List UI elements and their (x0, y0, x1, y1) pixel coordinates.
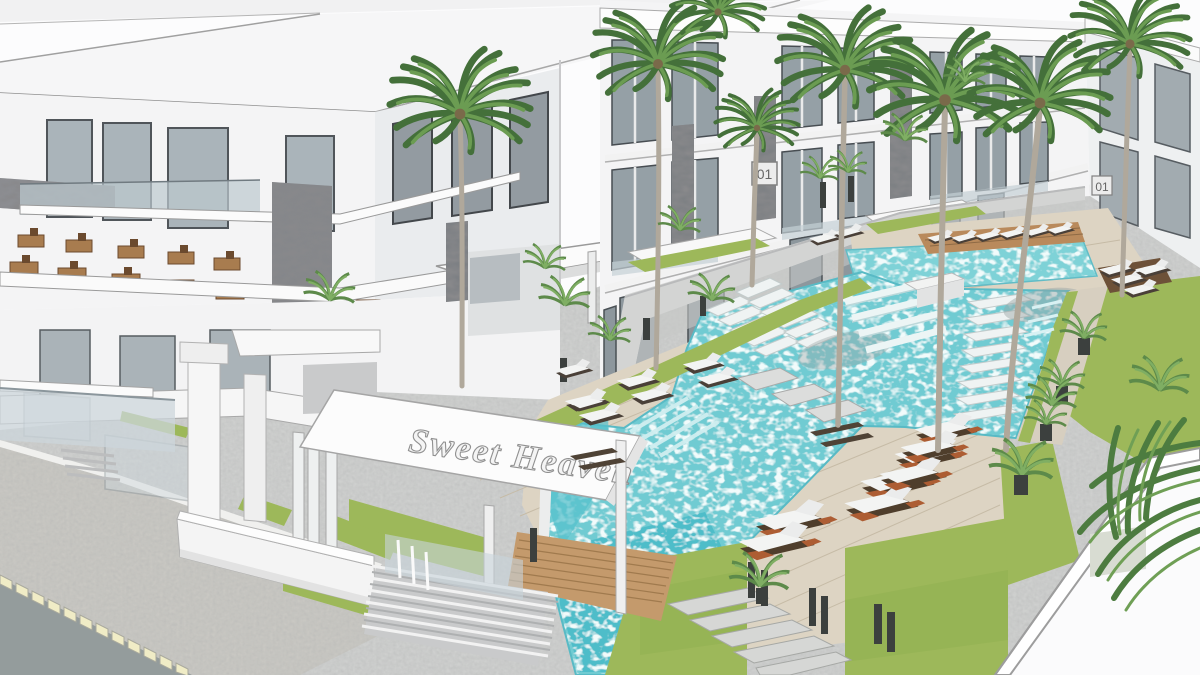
svg-text:01: 01 (757, 166, 773, 182)
svg-text:01: 01 (1095, 180, 1109, 194)
